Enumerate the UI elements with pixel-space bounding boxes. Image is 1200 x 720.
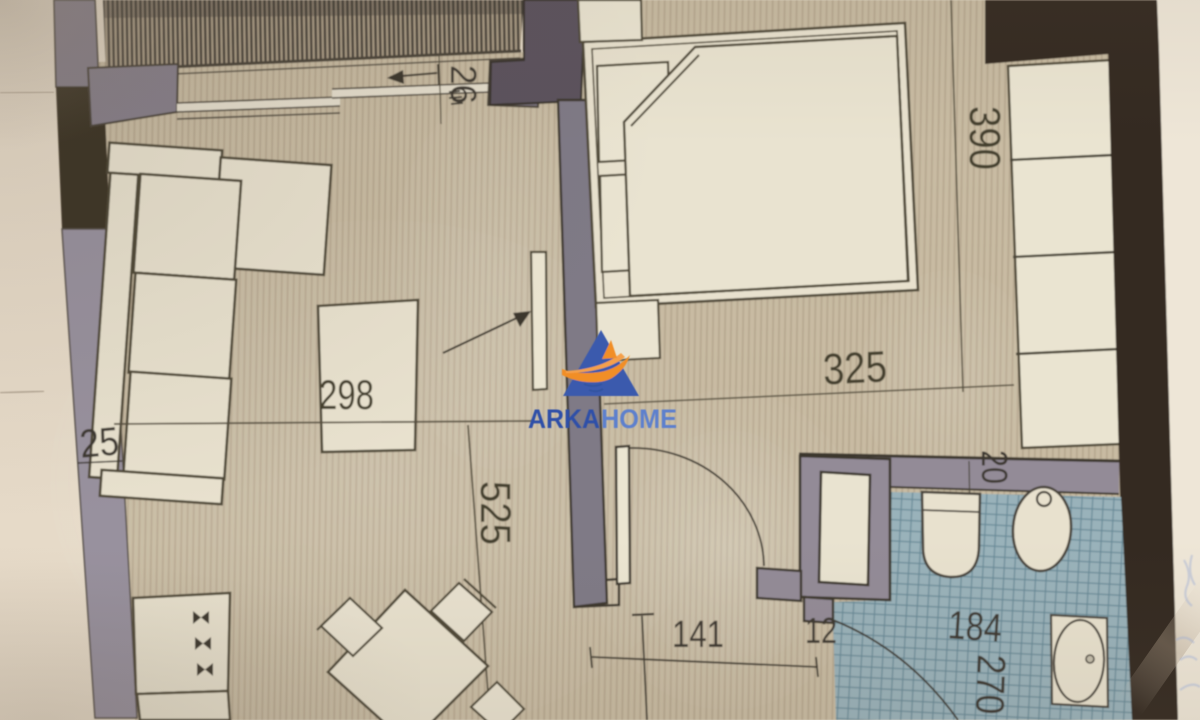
svg-text:ARKA: ARKA: [528, 404, 600, 434]
svg-text:HOME: HOME: [601, 404, 677, 434]
